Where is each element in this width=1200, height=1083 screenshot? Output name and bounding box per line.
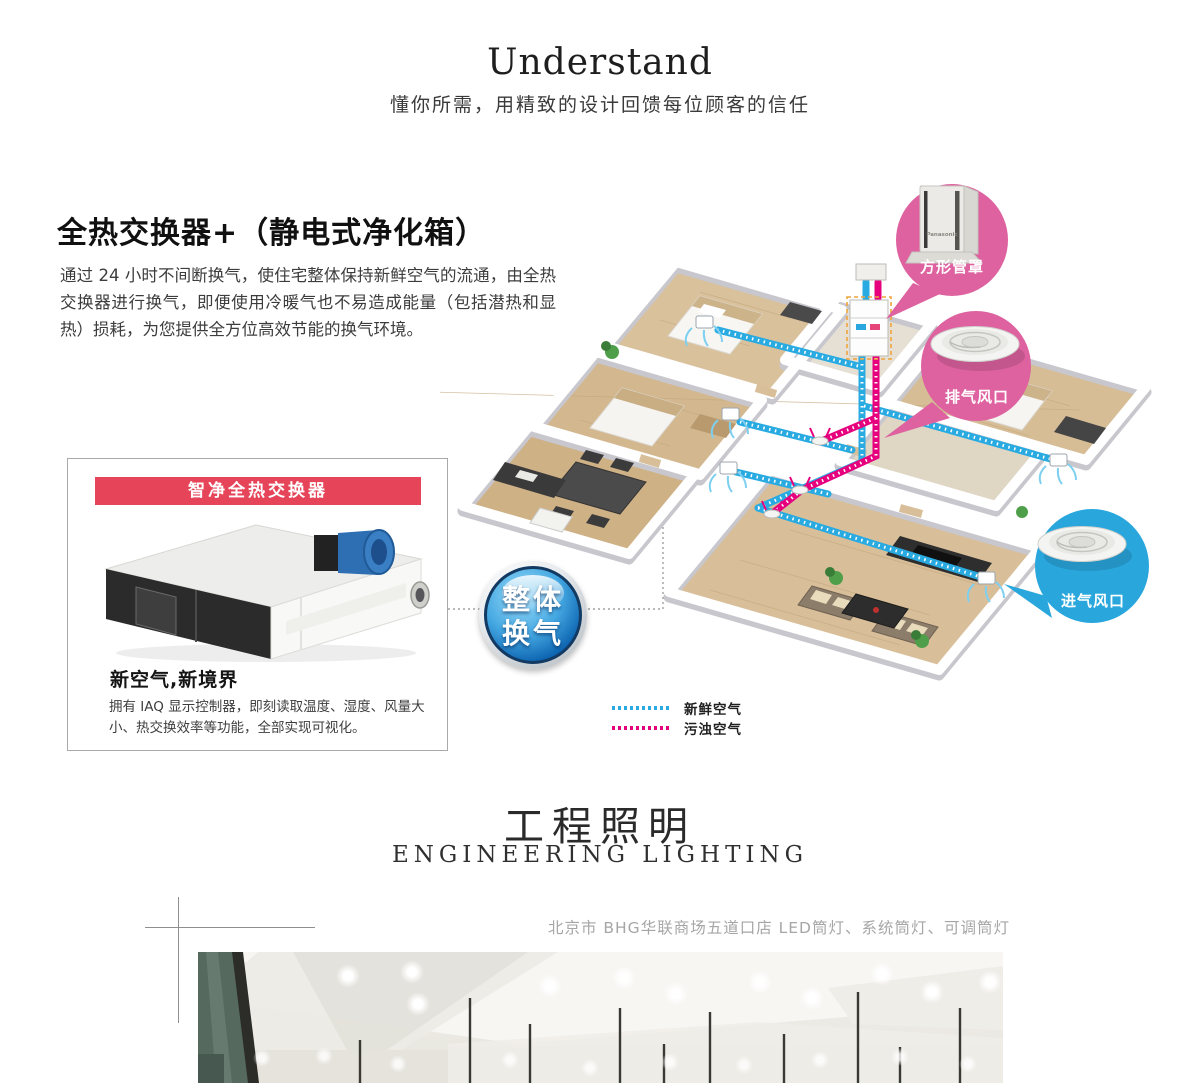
legend-dirty-air: 污浊空气 <box>612 718 742 738</box>
intake-vent-label: 进气风口 <box>1061 592 1125 610</box>
panasonic-logo: Panasonic <box>926 232 957 238</box>
erv-unit <box>847 297 891 359</box>
legend-fresh-air: 新鲜空气 <box>612 698 742 718</box>
badge-sphere: 整体 换气 <box>484 566 582 664</box>
crop-mark-vertical <box>178 897 179 1023</box>
lighting-section-title-en: ENGINEERING LIGHTING <box>0 842 1200 868</box>
page-subtitle: 懂你所需，用精致的设计回馈每位顾客的信任 <box>0 90 1200 117</box>
product-description: 拥有 IAQ 显示控制器，即刻读取温度、湿度、风量大小、热交换效率等功能，全部实… <box>109 697 431 739</box>
duct-mount <box>314 535 340 571</box>
dirty-air-line-swatch <box>612 726 670 730</box>
badge-label: 整体 换气 <box>487 583 579 651</box>
crop-mark-horizontal <box>145 927 315 928</box>
exterior-duct-cap <box>856 264 886 280</box>
fresh-air-line-swatch <box>612 706 670 710</box>
heat-exchanger-product-image <box>76 511 440 663</box>
product-title: 新空气,新境界 <box>110 665 238 692</box>
ceiling-lighting-photo <box>198 952 1003 1083</box>
airflow-legend: 新鲜空气 污浊空气 <box>612 698 742 738</box>
section-heading: 全热交换器+（静电式净化箱） <box>57 208 486 252</box>
page-title: Understand <box>0 42 1200 83</box>
exhaust-vent-label: 排气风口 <box>945 388 1009 406</box>
product-card: 智净全热交换器 新空气,新境界 拥有 IAQ 显示控制器，即刻读取温度、湿度、风… <box>67 458 448 751</box>
floorplan-diagram: Panasonic 方形管罩 排气风口 <box>440 170 1180 760</box>
photo-caption: 北京市 BHG华联商场五道口店 LED筒灯、系统筒灯、可调筒灯 <box>548 916 1010 938</box>
whole-house-ventilation-badge: 整体 换气 <box>479 561 587 669</box>
brochure-page: Understand 懂你所需，用精致的设计回馈每位顾客的信任 全热交换器+（静… <box>0 0 1200 1083</box>
square-duct-label: 方形管罩 <box>920 258 984 276</box>
product-banner: 智净全热交换器 <box>95 477 421 505</box>
callout-square-duct: Panasonic 方形管罩 <box>886 184 1008 319</box>
